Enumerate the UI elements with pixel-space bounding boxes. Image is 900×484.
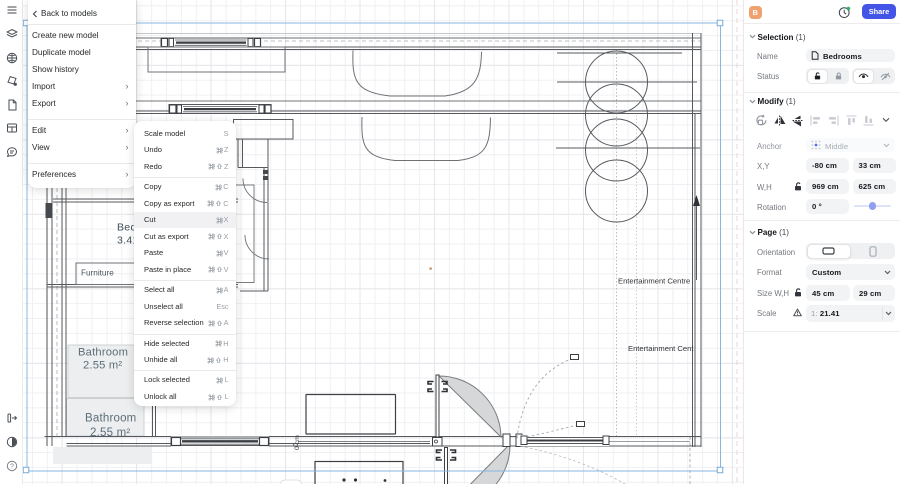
svg-text:2.55 m²: 2.55 m² bbox=[83, 360, 122, 372]
svg-text:Furniture: Furniture bbox=[81, 269, 114, 278]
svg-text:Bathroom: Bathroom bbox=[85, 413, 136, 425]
svg-text:2.55 m²: 2.55 m² bbox=[90, 427, 130, 439]
svg-text:0 cm: 0 cm bbox=[294, 435, 301, 450]
svg-text:Entertainment Centre: Entertainment Centre bbox=[618, 277, 690, 286]
svg-text:?: ? bbox=[10, 463, 14, 470]
svg-text:Bathroom: Bathroom bbox=[78, 347, 128, 359]
svg-text:Entertainment Cent: Entertainment Cent bbox=[628, 344, 694, 353]
